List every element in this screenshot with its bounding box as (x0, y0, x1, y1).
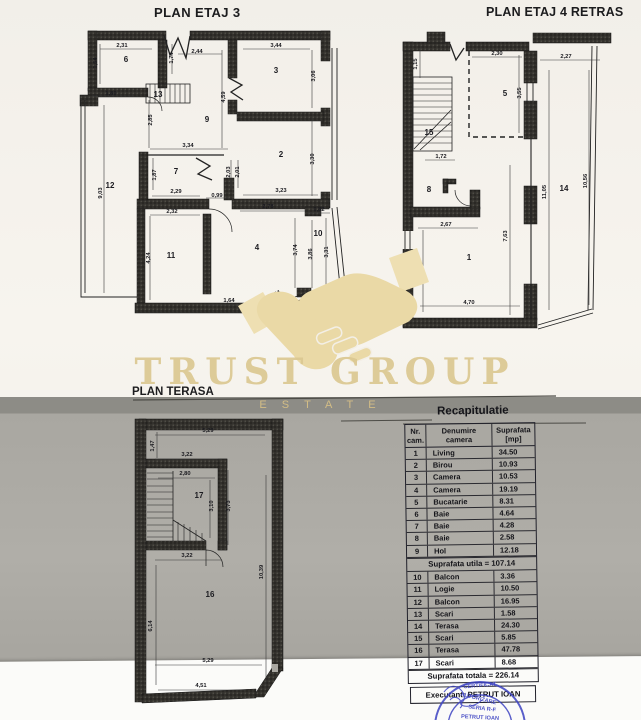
dimension-label: 1,87 (152, 169, 158, 180)
table-cell: 3.36 (494, 570, 536, 582)
round-stamp: CERTIFICAT AUTORIZARE SERIA R-F PETRUT I… (426, 670, 542, 720)
dimension-label: 2,67 (440, 222, 451, 228)
dimension-label: 5,29 (202, 428, 214, 434)
dimension-label: 2,03 (226, 166, 232, 178)
dimension-label: 2,85 (148, 114, 154, 126)
table-cell: 5.85 (495, 631, 537, 643)
recap-title: Recapitulatie (437, 404, 554, 418)
room-number-label: 9 (205, 115, 210, 124)
table-header-cell: Suprafata[mp] (492, 423, 534, 446)
table-cell: 7 (407, 521, 428, 532)
table-cell: Balcon (429, 595, 495, 607)
dimension-label: 2,01 (235, 166, 241, 178)
table-cell: 10.53 (493, 471, 535, 483)
table-cell: 2 (406, 460, 427, 471)
dimension-label: 3,73 (226, 500, 232, 512)
room-number-label: 2 (279, 150, 284, 159)
dimension-label: 10,56 (583, 173, 589, 188)
room-number-label: 17 (195, 491, 204, 500)
table-cell: 12 (408, 596, 429, 607)
table-rows-group-2: 10Balcon3.3611Logie10.5012Balcon16.9513S… (407, 570, 537, 669)
dimension-label: 4,51 (195, 683, 207, 689)
dimension-label: 2,29 (170, 189, 182, 195)
room-number-label: 4 (255, 243, 260, 252)
table-cell: 4.64 (493, 507, 535, 519)
table-cell: 4 (406, 484, 427, 495)
dimension-label: 1,64 (93, 57, 99, 69)
dimension-label: 3,86 (308, 248, 314, 260)
dimension-label: 3,44 (270, 43, 282, 49)
dimension-label: 1,74 (169, 52, 175, 64)
table-cell: Baie (427, 508, 493, 520)
stamp-text: SERIA R-F (468, 704, 497, 713)
table-header-row: Nr.cam. Denumirecamera Suprafata[mp] (405, 423, 534, 448)
dimension-label: 2,32 (166, 209, 177, 215)
dimension-label: 4,59 (221, 91, 227, 103)
table-cell: 15 (408, 633, 429, 644)
table-cell: 16 (408, 645, 429, 656)
table-cell: Camera (427, 471, 493, 483)
table-cell: 16.95 (495, 595, 537, 607)
room-number-label: 12 (106, 181, 115, 190)
dimension-label: 1,64 (223, 298, 235, 304)
dimension-label: 2,80 (179, 471, 190, 477)
dimension-label: 3,22 (181, 553, 192, 559)
dimension-label: 5,29 (202, 658, 214, 664)
plan-etaj3-drawing (80, 31, 346, 313)
room-number-label: 11 (167, 251, 176, 260)
dimension-label: 3,74 (293, 244, 299, 256)
dimension-label: 1,15 (413, 58, 419, 70)
dimension-label: 0,99 (211, 193, 223, 199)
table-cell: 24.30 (495, 619, 537, 631)
scanned-floorplan-page: 613932712114102,311,642,441,743,443,061,… (0, 0, 641, 720)
dimension-label: 2,27 (560, 54, 571, 60)
dimension-label: 3,30 (310, 153, 316, 164)
room-number-label: 3 (274, 66, 279, 75)
table-cell: 13 (408, 608, 429, 619)
table-cell: Logie (428, 583, 494, 595)
table-cell: 47.78 (495, 643, 537, 655)
dimension-label: 4,70 (463, 300, 474, 306)
table-cell: 12.18 (494, 544, 536, 556)
dimension-label: 3,34 (182, 143, 194, 149)
plan-etaj3-title: PLAN ETAJ 3 (154, 5, 241, 20)
dimension-label: 3,22 (181, 452, 192, 458)
dimension-label: 3,23 (275, 188, 287, 194)
dimension-label: 1,80 (105, 91, 116, 97)
table-header-cell: Nr.cam. (405, 425, 426, 447)
dimension-label: 6,14 (148, 620, 154, 632)
dimension-label: 2,78 (262, 204, 274, 210)
stamp-text: PETRUT IOAN (461, 714, 499, 720)
table-cell: 1 (406, 448, 427, 459)
dimension-label: 10,39 (259, 564, 265, 579)
table-cell: Birou (427, 459, 493, 471)
dimension-label: 1,47 (150, 440, 156, 451)
room-number-label: 1 (467, 253, 472, 262)
dimension-label: 1,72 (435, 154, 446, 160)
dimension-label: 3,55 (517, 87, 523, 99)
table-cell: Scari (430, 656, 496, 668)
table-cell: Scari (429, 632, 495, 644)
table-cell: 1.58 (495, 607, 537, 619)
table-cell: Baie (428, 532, 494, 544)
dimension-label: 3,10 (209, 500, 215, 511)
table-rows-group-1: 1Living34.502Birou10.933Camera10.534Came… (406, 446, 537, 557)
table-cell: 8.68 (496, 656, 538, 668)
table-cell: Terasa (429, 620, 495, 632)
dimension-label: 7,63 (503, 230, 509, 242)
table-cell: 10.93 (493, 458, 535, 470)
dimension-label: 2,44 (191, 49, 203, 55)
dimension-label: 9,03 (98, 187, 104, 199)
recap-table: Nr.cam. Denumirecamera Suprafata[mp] 1Li… (404, 422, 539, 684)
room-number-label: 14 (560, 184, 569, 193)
table-cell: 10.50 (494, 583, 536, 595)
table-cell: 17 (409, 657, 430, 668)
dimension-label: 2,31 (116, 43, 128, 49)
table-cell: 11 (407, 584, 428, 595)
dimension-label: 0,82 (313, 207, 324, 213)
table-cell: 10 (407, 572, 428, 583)
dimension-label: 3,06 (311, 70, 317, 82)
table-cell: 8 (407, 533, 428, 544)
table-cell: 19.19 (493, 483, 535, 495)
table-cell: Bucatarie (427, 496, 493, 508)
room-number-label: 7 (174, 167, 179, 176)
room-number-label: 5 (503, 89, 508, 98)
table-cell: 2.58 (494, 531, 536, 543)
table-cell: 9 (407, 545, 428, 556)
room-number-label: 6 (124, 55, 129, 64)
table-cell: Hol (428, 544, 494, 556)
watermark-title: TRUST GROUP (110, 351, 540, 393)
room-number-label: 8 (427, 185, 432, 194)
table-cell: 4.28 (494, 519, 536, 531)
dimension-label: 11,05 (542, 184, 548, 199)
table-cell: 8.31 (493, 495, 535, 507)
room-number-label: 10 (314, 229, 323, 238)
table-cell: Terasa (429, 644, 495, 656)
table-cell: 6 (406, 509, 427, 520)
table-cell: Camera (427, 483, 493, 495)
table-cell: Scari (429, 608, 495, 620)
dimension-label: 4,24 (146, 252, 152, 264)
table-cell: Living (427, 447, 493, 459)
dimension-label: 2,30 (491, 51, 502, 57)
plan-etaj4-title: PLAN ETAJ 4 RETRAS (486, 5, 623, 19)
room-number-label: 13 (154, 90, 163, 99)
table-header-cell: Denumirecamera (426, 424, 492, 447)
recap-section: Recapitulatie Nr.cam. Denumirecamera Sup… (404, 404, 558, 704)
table-cell: 3 (406, 472, 427, 483)
room-number-label: 15 (425, 128, 434, 137)
table-cell: Baie (428, 520, 494, 532)
table-cell: Balcon (428, 571, 494, 583)
room-number-label: 16 (206, 590, 215, 599)
table-cell: 5 (406, 496, 427, 507)
table-cell: 34.50 (493, 446, 535, 458)
dimension-label: 3,31 (324, 246, 330, 258)
table-cell: 14 (408, 621, 429, 632)
plan-etaj4-drawing (402, 32, 611, 329)
